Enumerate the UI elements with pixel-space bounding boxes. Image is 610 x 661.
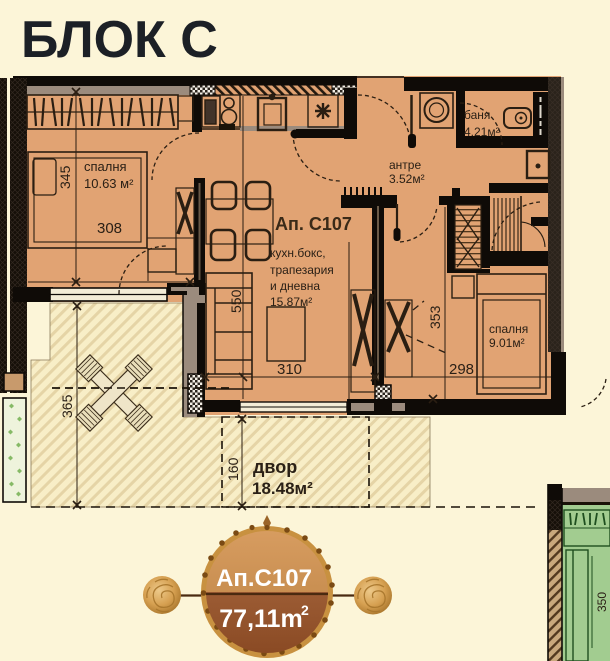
svg-text:77,11m: 77,11m xyxy=(219,605,302,633)
svg-text:двор: двор xyxy=(253,457,297,477)
svg-text:9.01м²: 9.01м² xyxy=(489,336,525,350)
svg-text:550: 550 xyxy=(228,289,244,313)
svg-text:спалня: спалня xyxy=(84,159,127,174)
svg-text:353: 353 xyxy=(427,305,443,329)
svg-text:2: 2 xyxy=(301,602,309,618)
svg-text:баня: баня xyxy=(464,108,490,122)
svg-text:Ап.C107: Ап.C107 xyxy=(216,565,312,592)
svg-text:15.87м²: 15.87м² xyxy=(270,295,312,309)
svg-text:160: 160 xyxy=(225,457,241,481)
svg-text:БЛОК С: БЛОК С xyxy=(21,11,218,69)
svg-text:365: 365 xyxy=(59,394,75,418)
svg-text:антре: антре xyxy=(389,158,421,172)
svg-text:18.48м²: 18.48м² xyxy=(252,479,313,498)
svg-text:4.21м²: 4.21м² xyxy=(464,125,500,139)
svg-text:и дневна: и дневна xyxy=(270,279,320,293)
svg-text:трапезария: трапезария xyxy=(270,263,334,277)
svg-text:кухн.бокс,: кухн.бокс, xyxy=(270,246,326,260)
svg-text:345: 345 xyxy=(57,165,73,189)
svg-text:10.63 м²: 10.63 м² xyxy=(84,176,134,191)
svg-text:350: 350 xyxy=(595,592,609,612)
svg-text:310: 310 xyxy=(277,361,302,378)
svg-text:3.52м²: 3.52м² xyxy=(389,172,425,186)
svg-text:Ап. C107: Ап. C107 xyxy=(275,214,352,234)
svg-text:спалня: спалня xyxy=(489,322,528,336)
svg-text:298: 298 xyxy=(449,361,474,378)
svg-text:308: 308 xyxy=(97,220,122,237)
